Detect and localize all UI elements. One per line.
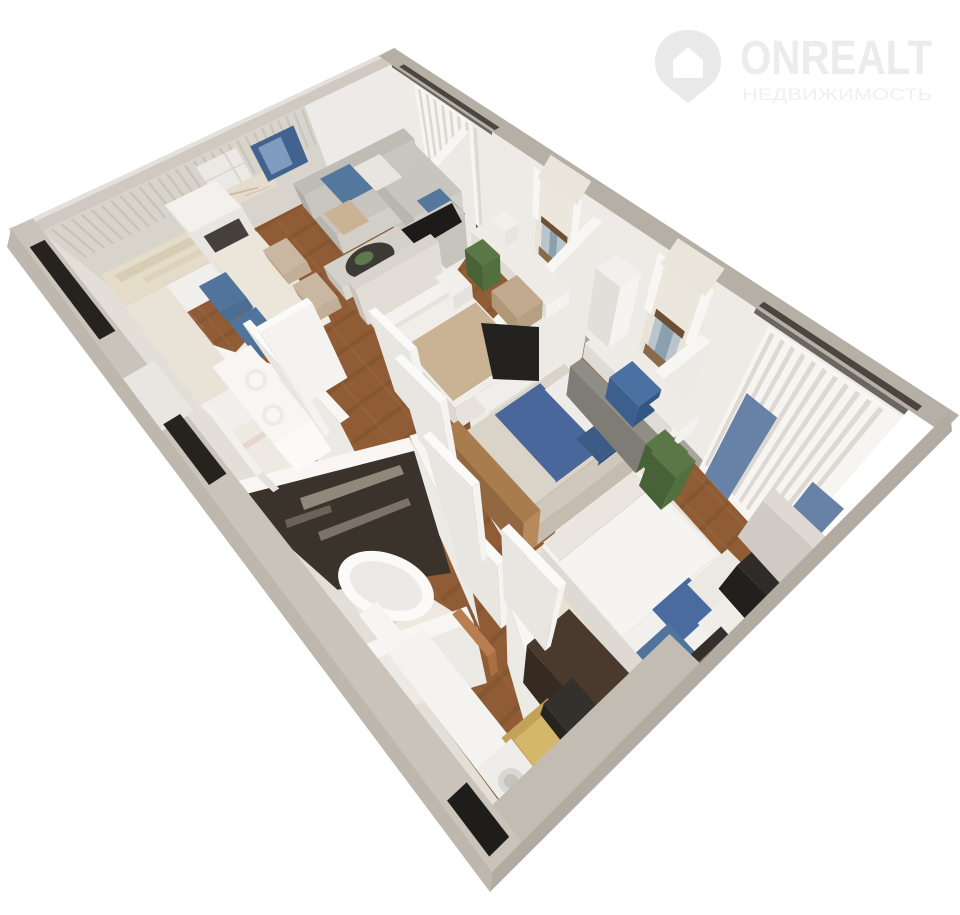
svg-text:ONREALT: ONREALT [740, 32, 932, 85]
svg-text:НЕДВИЖИМОСТЬ: НЕДВИЖИМОСТЬ [742, 85, 932, 104]
